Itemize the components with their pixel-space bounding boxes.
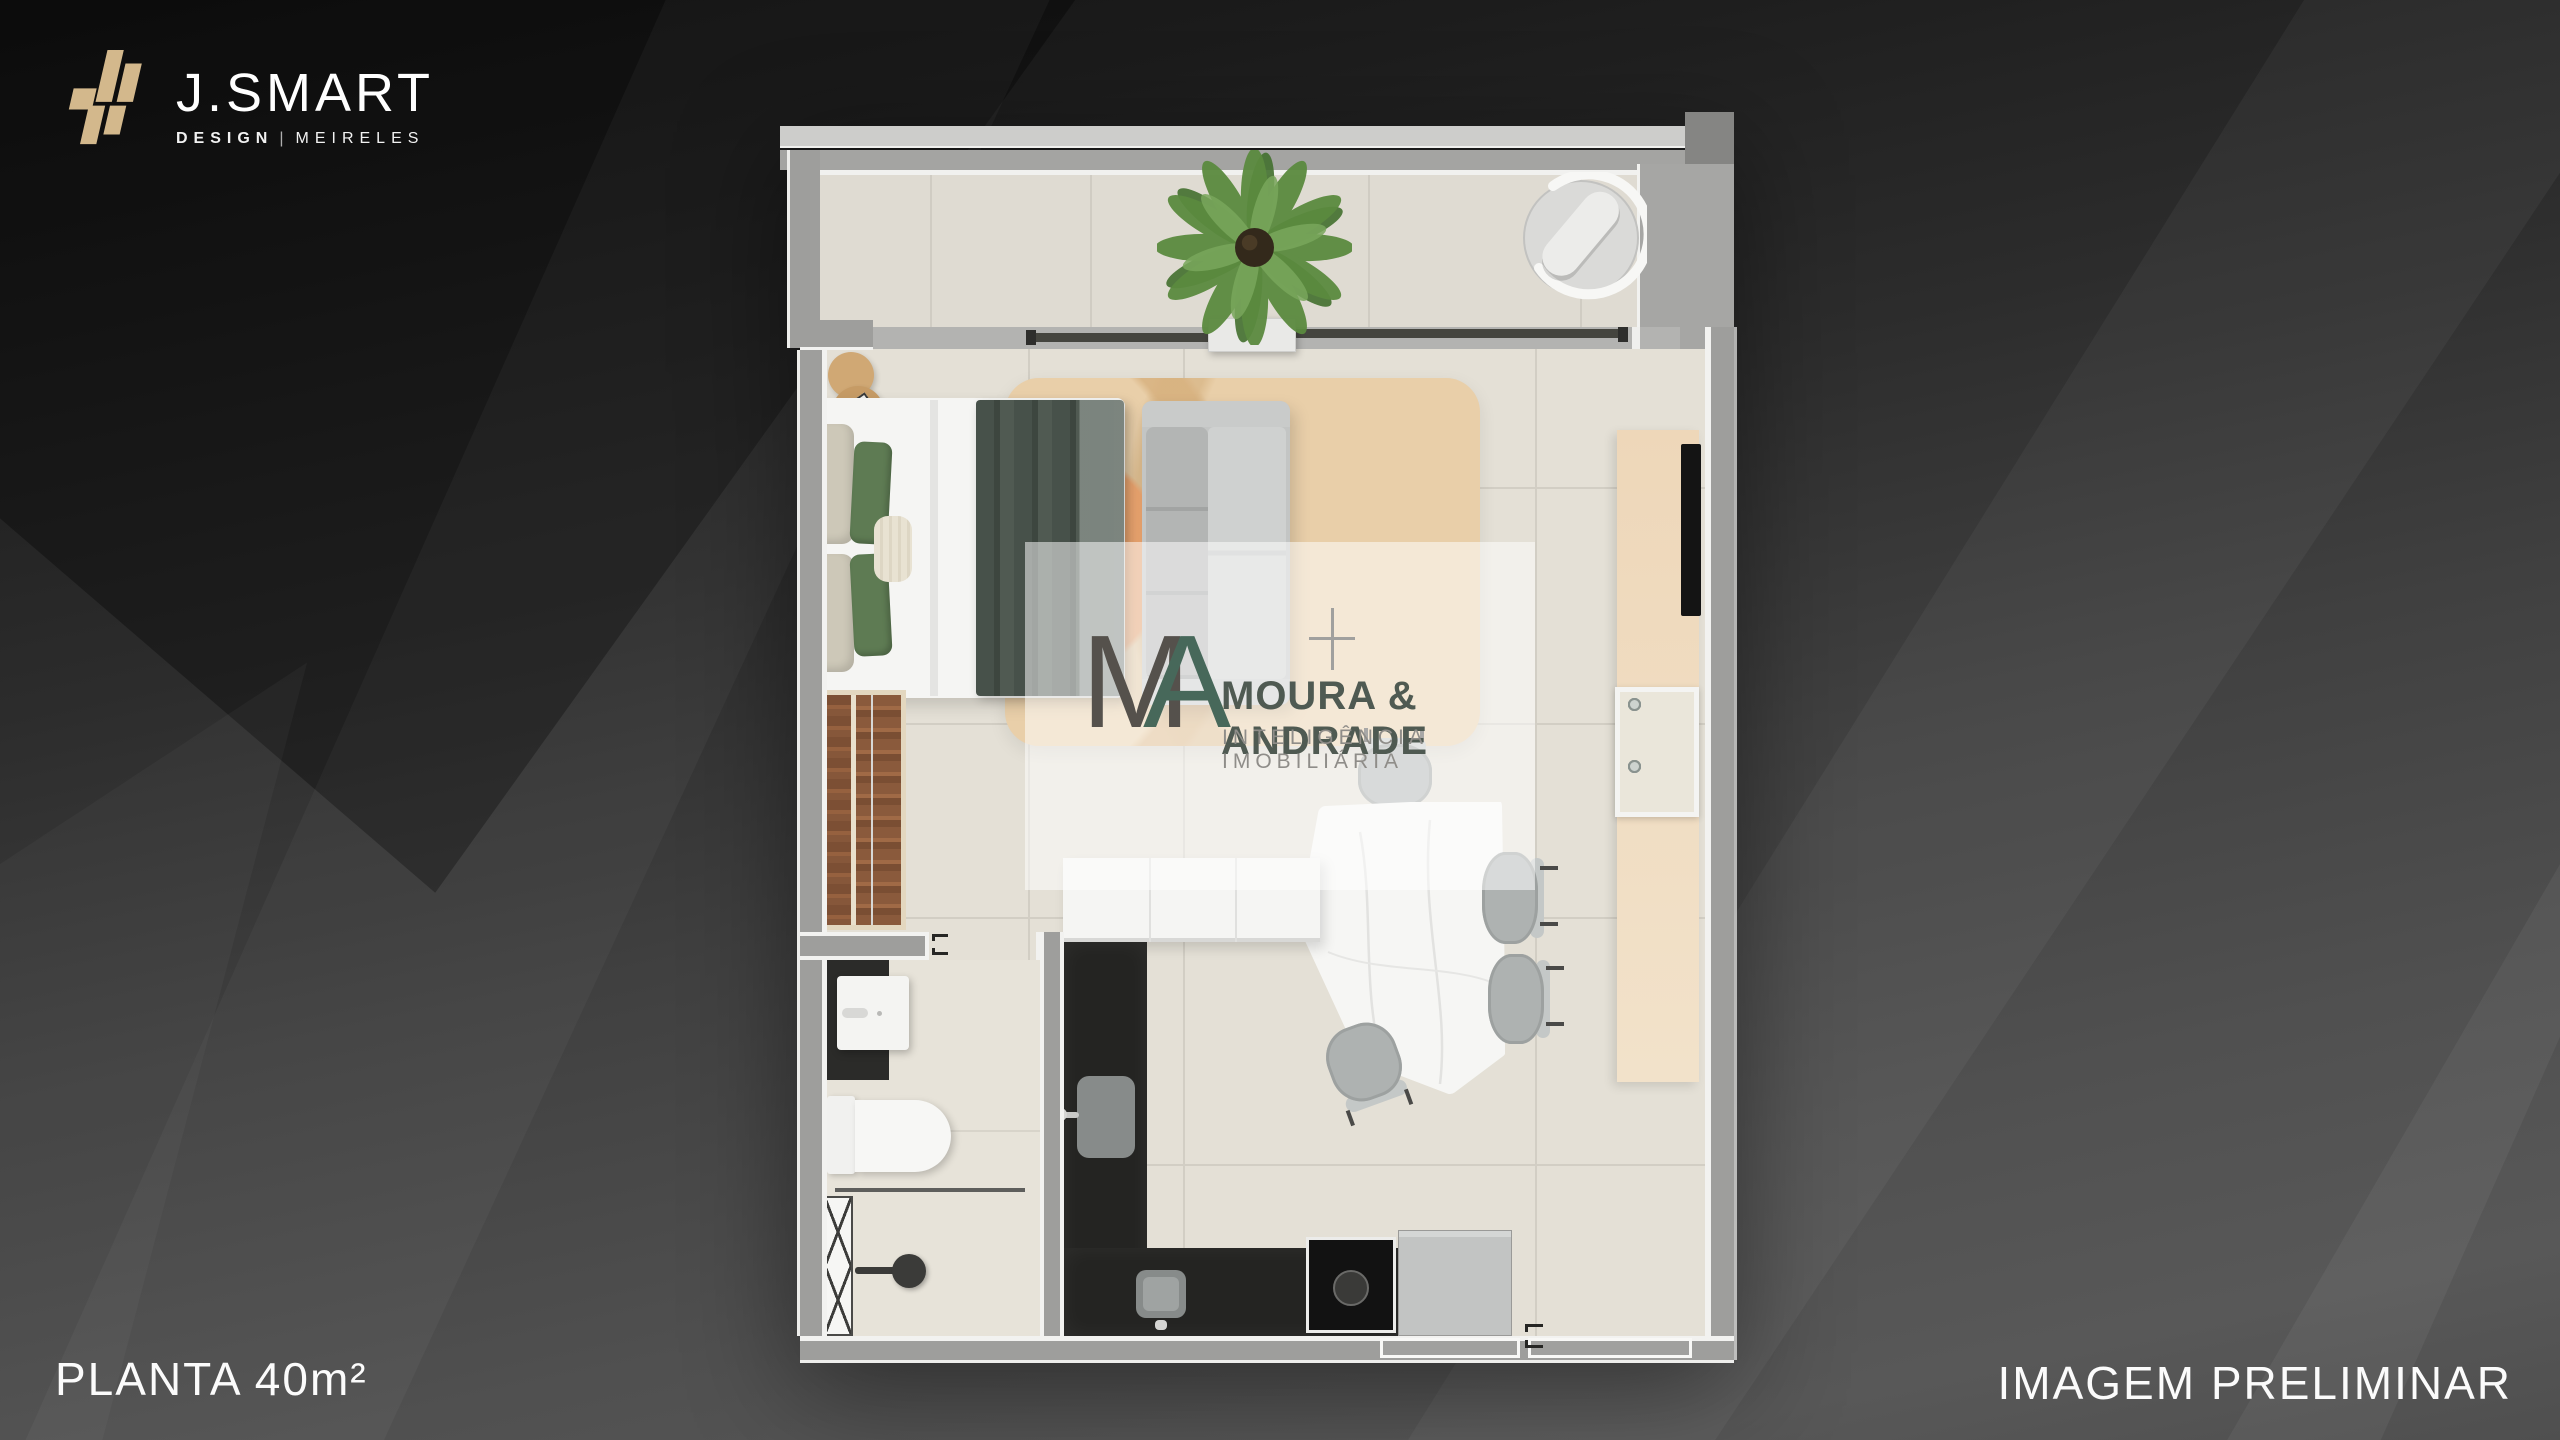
brand-subtitle: DESIGN|MEIRELES <box>176 130 434 148</box>
bathroom-door-mark <box>932 934 948 941</box>
wardrobe-rail <box>871 695 873 925</box>
chair-seat <box>1488 954 1544 1044</box>
bathroom-wall <box>800 932 925 960</box>
sink-basin <box>1143 1277 1179 1311</box>
wardrobe-clothes <box>856 695 901 925</box>
brand-logo: J.SMART DESIGN|MEIRELES <box>58 48 434 148</box>
duvet-fold <box>930 400 938 696</box>
right-wall <box>1705 327 1734 1360</box>
prep-sink-faucet <box>1155 1320 1167 1330</box>
refrigerator <box>1398 1230 1512 1336</box>
pan <box>1333 1270 1369 1306</box>
entry-door-mark <box>1525 1324 1543 1332</box>
shower-head <box>892 1254 926 1288</box>
toilet <box>855 1100 951 1172</box>
chair-leg <box>1546 1022 1564 1026</box>
shower-door <box>823 1196 853 1336</box>
entry-recess <box>1528 1338 1692 1358</box>
vanity-sink <box>837 976 909 1050</box>
brand-name: J.SMART <box>176 66 434 120</box>
bathroom-wall <box>1040 932 1064 1336</box>
vanity-faucet <box>842 1008 868 1018</box>
register-cross-icon <box>1309 637 1355 640</box>
chair-leg <box>1540 866 1558 870</box>
page: J.SMART DESIGN|MEIRELES <box>0 0 2560 1440</box>
watermark: M A MOURA & ANDRADE INTELIGÊNCIA IMOBILI… <box>1025 542 1535 890</box>
chair-leg <box>1540 922 1558 926</box>
bathroom-door-threshold <box>925 932 929 960</box>
tile-seam <box>1368 175 1370 327</box>
tile-seam <box>1090 175 1092 327</box>
jsmart-logo-icon <box>58 48 154 148</box>
chair-leg <box>1546 966 1564 970</box>
watermark-tagline: INTELIGÊNCIA IMOBILIÁRIA <box>1222 726 1535 774</box>
tile-seam <box>1535 349 1537 1336</box>
balcony-left-wall <box>790 150 820 348</box>
sink-basin <box>1085 1084 1127 1150</box>
slab-edge <box>780 126 1685 148</box>
vanity-drain <box>877 1011 882 1016</box>
egg-lounge-chair <box>1515 172 1647 304</box>
track-jog <box>1632 327 1640 349</box>
plan-area-caption: PLANTA 40m² <box>55 1352 368 1406</box>
watermark-monogram-a: A <box>1143 616 1231 748</box>
palm-plant <box>1157 150 1352 345</box>
toilet-tank <box>827 1096 855 1174</box>
left-wall <box>800 350 827 1336</box>
bathroom-door-mark <box>932 948 948 955</box>
entry-recess <box>1380 1338 1520 1358</box>
sliding-door-handle <box>1618 327 1628 342</box>
sliding-door-handle <box>1026 330 1036 345</box>
balcony-right-wall <box>1640 164 1734 349</box>
bolster-pillow <box>874 516 912 582</box>
kitchen-sink <box>1077 1076 1135 1158</box>
tile-seam <box>930 175 932 327</box>
shower-partition <box>835 1188 1025 1192</box>
sofa-armrest <box>1142 401 1290 427</box>
wall-column <box>800 320 873 350</box>
dining-chair <box>1488 954 1544 1044</box>
spice-niche <box>1615 687 1699 817</box>
tv <box>1681 444 1701 616</box>
prep-sink <box>1136 1270 1186 1318</box>
entry-door-mark <box>1525 1340 1543 1348</box>
status-caption: IMAGEM PRELIMINAR <box>1997 1356 2512 1410</box>
shower-arm <box>855 1267 897 1274</box>
cooktop <box>1306 1237 1396 1333</box>
